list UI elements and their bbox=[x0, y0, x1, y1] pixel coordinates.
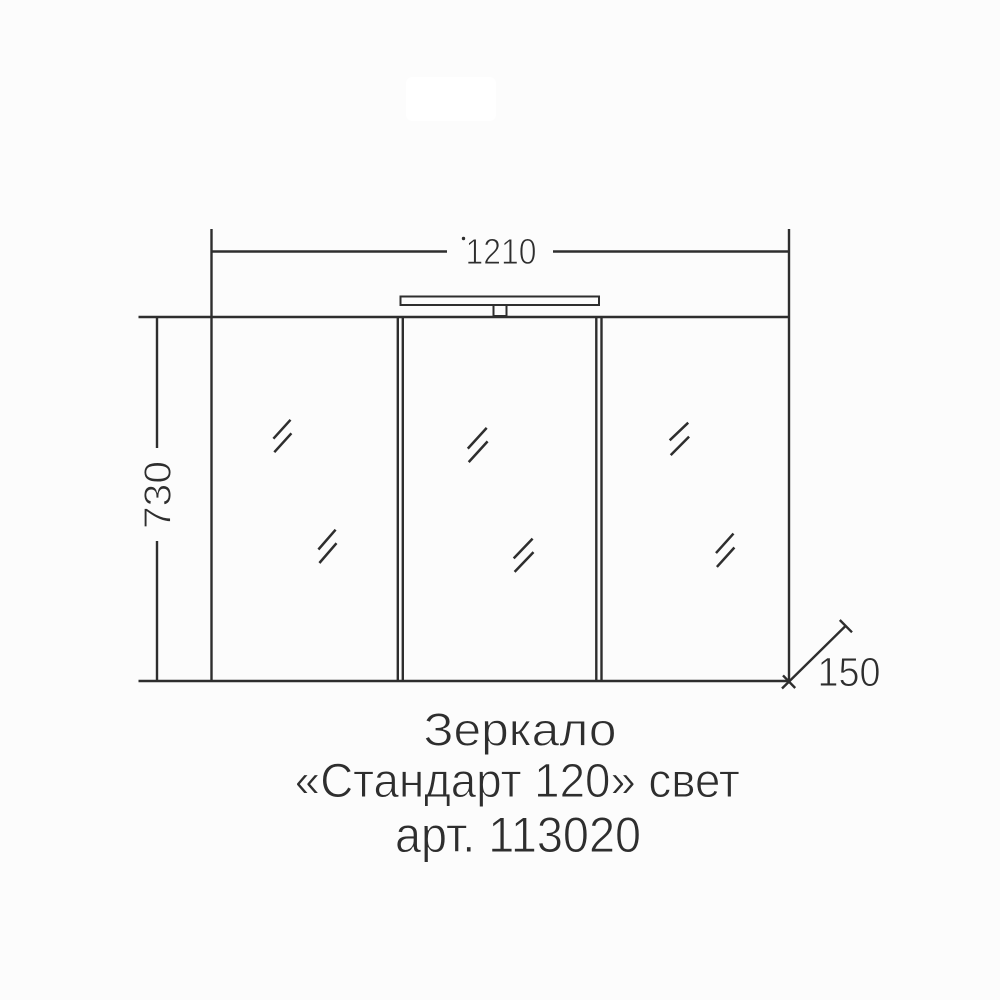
svg-text:«Стандарт 120» свет: «Стандарт 120» свет bbox=[295, 755, 740, 808]
svg-text:150: 150 bbox=[818, 649, 881, 695]
svg-text:1210: 1210 bbox=[466, 231, 537, 272]
svg-text:Зеркало: Зеркало bbox=[424, 704, 617, 756]
svg-text:730: 730 bbox=[138, 461, 180, 529]
svg-text:арт. 113020: арт. 113020 bbox=[395, 806, 641, 863]
